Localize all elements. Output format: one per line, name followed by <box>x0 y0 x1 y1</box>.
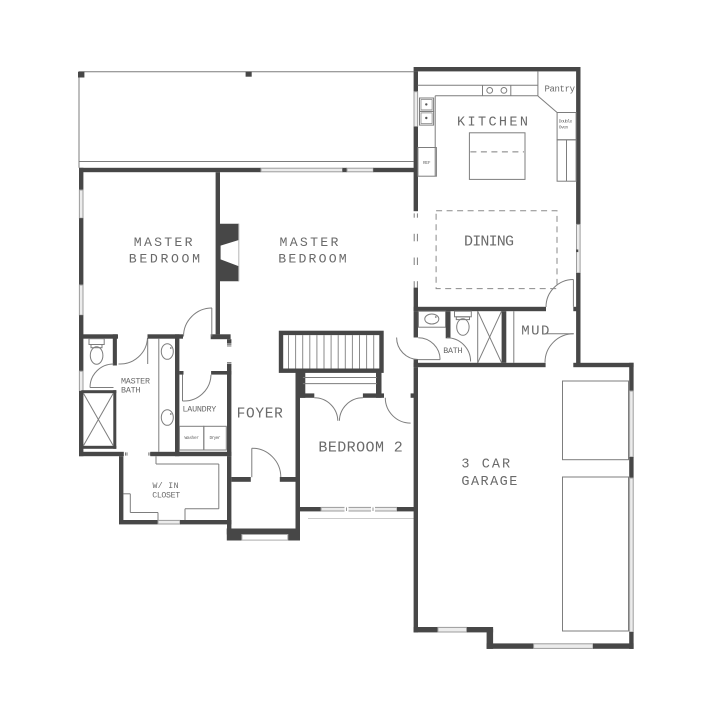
svg-text:FOYER: FOYER <box>237 406 283 422</box>
svg-text:CLOSET: CLOSET <box>152 492 180 501</box>
svg-text:BATH: BATH <box>443 346 462 356</box>
svg-text:REF: REF <box>423 161 431 166</box>
svg-text:BEDROOM 2: BEDROOM 2 <box>318 440 402 457</box>
svg-text:LAUNDRY: LAUNDRY <box>183 404 217 414</box>
svg-text:BEDROOM: BEDROOM <box>129 252 200 267</box>
svg-text:3 CAR: 3 CAR <box>461 458 510 473</box>
svg-text:DINING: DINING <box>464 234 514 251</box>
svg-text:Oven: Oven <box>559 124 569 130</box>
svg-text:KITCHEN: KITCHEN <box>457 115 528 130</box>
svg-text:BATH: BATH <box>121 386 141 396</box>
svg-text:W/ IN: W/ IN <box>153 481 179 491</box>
svg-text:BEDROOM: BEDROOM <box>278 252 346 267</box>
svg-text:Dryer: Dryer <box>210 435 221 441</box>
svg-text:Pantry: Pantry <box>545 85 576 95</box>
svg-text:Double: Double <box>559 119 573 125</box>
svg-text:MUD: MUD <box>521 323 549 339</box>
svg-text:Washer: Washer <box>185 435 200 441</box>
